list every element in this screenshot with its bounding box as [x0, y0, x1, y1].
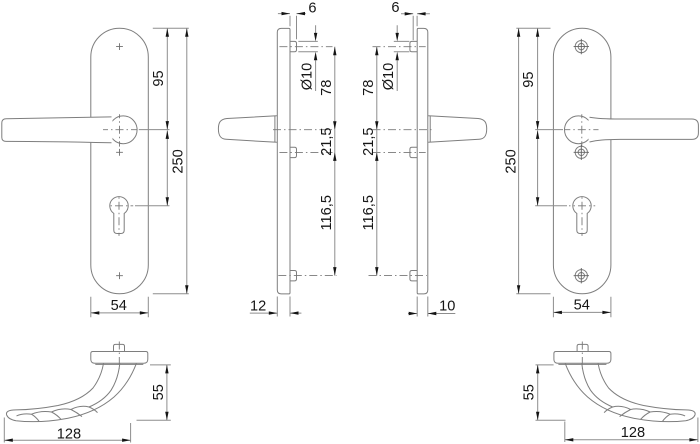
svg-text:128: 128 [621, 425, 645, 441]
svg-text:116,5: 116,5 [319, 195, 335, 230]
svg-text:250: 250 [171, 149, 187, 173]
svg-text:95: 95 [521, 72, 537, 88]
svg-text:250: 250 [503, 149, 519, 173]
svg-text:6: 6 [391, 0, 399, 16]
svg-text:95: 95 [151, 70, 167, 86]
svg-text:Ø10: Ø10 [300, 63, 316, 91]
svg-text:54: 54 [111, 298, 127, 314]
svg-text:12: 12 [250, 299, 266, 315]
svg-text:10: 10 [439, 298, 455, 314]
svg-text:55: 55 [522, 384, 538, 400]
svg-text:78: 78 [361, 80, 377, 96]
svg-text:6: 6 [308, 1, 316, 17]
svg-text:54: 54 [574, 297, 590, 313]
svg-text:21,5: 21,5 [361, 127, 377, 155]
svg-text:116,5: 116,5 [361, 195, 377, 230]
svg-text:Ø10: Ø10 [381, 63, 397, 91]
svg-text:21,5: 21,5 [319, 127, 335, 155]
svg-text:55: 55 [151, 384, 167, 400]
svg-text:128: 128 [57, 426, 81, 442]
svg-text:78: 78 [319, 80, 335, 96]
